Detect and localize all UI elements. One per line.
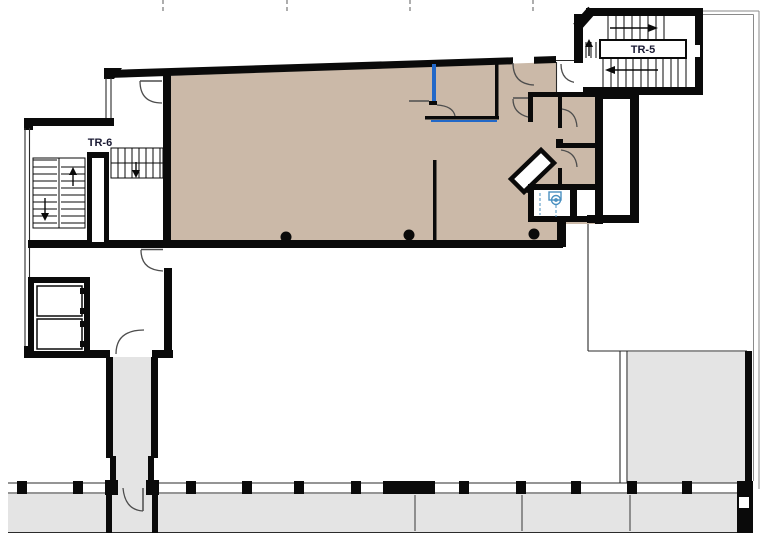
- column: [404, 230, 415, 241]
- floor-plan-page: TR-5 TR-6: [0, 0, 765, 545]
- elevator-car: [37, 286, 82, 316]
- column: [529, 229, 540, 240]
- tr5-label: TR-5: [631, 44, 655, 56]
- exit-corridor: [105, 357, 159, 533]
- elevator-car: [37, 319, 82, 349]
- solid-wall-segment: [383, 481, 435, 494]
- column: [281, 232, 292, 243]
- stairwell-tr5: TR-5: [574, 8, 703, 95]
- floor-plan-svg: TR-5 TR-6: [0, 0, 765, 545]
- elevator-shaft: [28, 277, 90, 357]
- tr6-label: TR-6: [88, 137, 112, 149]
- tr6-shaft: [87, 152, 109, 248]
- partition-wall-lower: [433, 160, 437, 240]
- band-corner-southeast: [737, 481, 753, 533]
- blue-partition-wall: [432, 64, 436, 102]
